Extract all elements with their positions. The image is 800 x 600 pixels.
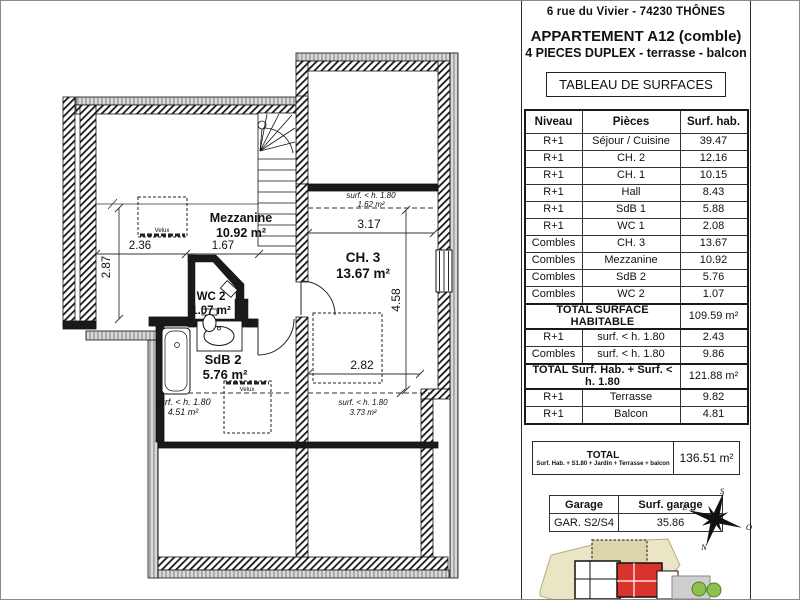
table-row: ComblesWC 21.07 [525, 287, 748, 305]
room-label-mezzanine: Mezzanine [210, 211, 273, 225]
lowheight-area-sdb2: 4.51 m² [168, 407, 200, 417]
col-header-pieces: Pièces [582, 110, 680, 134]
window-symbol [436, 250, 452, 292]
room-area-sdb2: 5.76 m² [203, 367, 248, 382]
room-label-sdb2: SdB 2 [205, 352, 242, 367]
surface-table-title: TABLEAU DE SURFACES [546, 72, 726, 97]
velux-label-mezzanine: Velux [155, 228, 170, 234]
table-row: Comblessurf. < h. 1.809.86 [525, 347, 748, 365]
col-header-niveau: Niveau [525, 110, 583, 134]
table-row: ComblesMezzanine10.92 [525, 253, 748, 270]
site-apartment-highlight [617, 563, 662, 597]
site-bush [692, 582, 706, 596]
dim-1-67: 1.67 [212, 240, 234, 252]
drawing-sheet: Mezzanine 10.92 m² CH. 3 13.67 m² WC 2 1… [0, 0, 800, 600]
velux-label-sdb2: Velux [240, 387, 255, 393]
table-row: R+1surf. < h. 1.802.43 [525, 329, 748, 347]
title-block: 6 rue du Vivier - 74230 THÔNES APPARTEME… [521, 1, 751, 600]
door-ch3 [301, 281, 335, 315]
site-bush [707, 583, 721, 597]
table-row: R+1CH. 212.16 [525, 151, 748, 168]
mezzanine-edge-line [96, 199, 258, 209]
dim-2-87: 2.87 [101, 256, 113, 278]
surface-table: Niveau Pièces Surf. hab. R+1Séjour / Cui… [524, 109, 749, 425]
table-header-row: Niveau Pièces Surf. hab. [525, 110, 748, 134]
bathtub [162, 328, 190, 394]
lowheight-label-ch3-top: surf. < h. 1.80 [346, 191, 396, 200]
grand-total-value: 136.51 m² [674, 442, 739, 474]
total-habitable-row: TOTAL SURFACE HABITABLE 109.59 m² [525, 304, 748, 329]
floor-plan: Mezzanine 10.92 m² CH. 3 13.67 m² WC 2 1… [1, 1, 521, 600]
apartment-title: APPARTEMENT A12 (comble) [522, 28, 750, 45]
total-with-sub-row: TOTAL Surf. Hab. + Surf. < h. 1.80 121.8… [525, 364, 748, 389]
door-sdb2 [258, 319, 294, 355]
room-area-mezzanine: 10.92 m² [216, 226, 266, 240]
dim-4-58: 4.58 [389, 288, 403, 312]
table-row: ComblesCH. 313.67 [525, 236, 748, 253]
room-area-ch3: 13.67 m² [336, 266, 391, 281]
table-row: R+1WC 12.08 [525, 219, 748, 236]
compass-label-o: O [746, 522, 752, 532]
grand-total-box: TOTAL Surf. Hab. + S1.80 + Jardin + Terr… [532, 441, 740, 475]
lowheight-label-sdb2: surf. < h. 1.80 [155, 397, 210, 407]
room-label-ch3: CH. 3 [346, 250, 381, 265]
apartment-subtitle: 4 PIECES DUPLEX - terrasse - balcon [522, 46, 750, 60]
velux-ch3 [313, 313, 382, 383]
garage-col-header: Garage [550, 496, 619, 514]
table-row: ComblesSdB 25.76 [525, 270, 748, 287]
site-plan [524, 534, 750, 600]
table-row: R+1Terrasse9.82 [525, 389, 748, 407]
lowheight-label-ch3-bottom: surf. < h. 1.80 [338, 398, 388, 407]
address: 6 rue du Vivier - 74230 THÔNES [522, 6, 750, 18]
table-row: R+1CH. 110.15 [525, 168, 748, 185]
site-building-white [575, 561, 620, 599]
table-row: R+1Séjour / Cuisine39.47 [525, 134, 748, 151]
room-label-wc2: WC 2 [197, 291, 226, 303]
grand-total-label: TOTAL [533, 450, 673, 461]
table-row: R+1SdB 15.88 [525, 202, 748, 219]
compass-label-s: S [720, 486, 725, 496]
table-row: R+1Balcon4.81 [525, 407, 748, 425]
room-area-wc2: 1.07 m² [191, 305, 231, 317]
grand-total-sublabel: Surf. Hab. + S1.80 + Jardin + Terrasse +… [533, 461, 673, 467]
dim-2-82: 2.82 [350, 358, 374, 372]
lowheight-area-ch3-bottom: 3.73 m² [349, 408, 376, 417]
dim-3-17: 3.17 [357, 217, 381, 231]
lowheight-area-ch3-top: 1.62 m² [357, 200, 384, 209]
col-header-surf: Surf. hab. [680, 110, 748, 134]
compass-label-e: E [681, 502, 688, 512]
table-row: R+1Hall8.43 [525, 185, 748, 202]
dim-2-36: 2.36 [129, 240, 151, 252]
